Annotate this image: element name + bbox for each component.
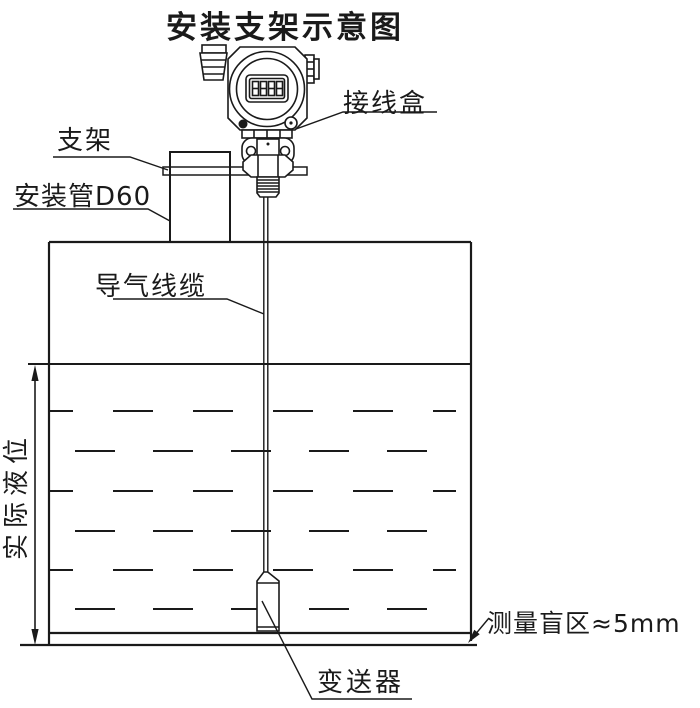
- junction-box-label: 接线盒: [343, 83, 427, 120]
- installation-diagram: 安装支架示意图 接线盒 支架 安装管D60 导气线缆 实际液位 测量盲区≈5mm…: [0, 0, 700, 708]
- hex-nut: [243, 155, 293, 177]
- liquid-dashes: [50, 411, 456, 609]
- mounting-pipe-label: 安装管D60: [14, 176, 151, 213]
- tank-outline: [20, 242, 477, 645]
- threaded-stud: [257, 177, 279, 197]
- screw-left-icon: [239, 120, 248, 129]
- air-cable: [264, 197, 268, 572]
- level-dimension-arrow: [31, 365, 38, 645]
- page-title: 安装支架示意图: [150, 2, 420, 47]
- blind-zone-label: 测量盲区≈5mm: [487, 604, 681, 640]
- transmitter-label: 变送器: [317, 662, 404, 699]
- lcd-display: [246, 75, 288, 102]
- transmitter-head: [200, 45, 319, 197]
- leader-bracket: [53, 157, 168, 170]
- air-cable-label: 导气线缆: [95, 266, 207, 303]
- mounting-pipe: [170, 152, 230, 242]
- probe: [257, 572, 279, 631]
- cable-gland-icon: [200, 45, 227, 80]
- bracket-label: 支架: [57, 120, 113, 157]
- actual-level-label: 实际液位: [3, 414, 31, 578]
- housing-neck: [242, 130, 292, 138]
